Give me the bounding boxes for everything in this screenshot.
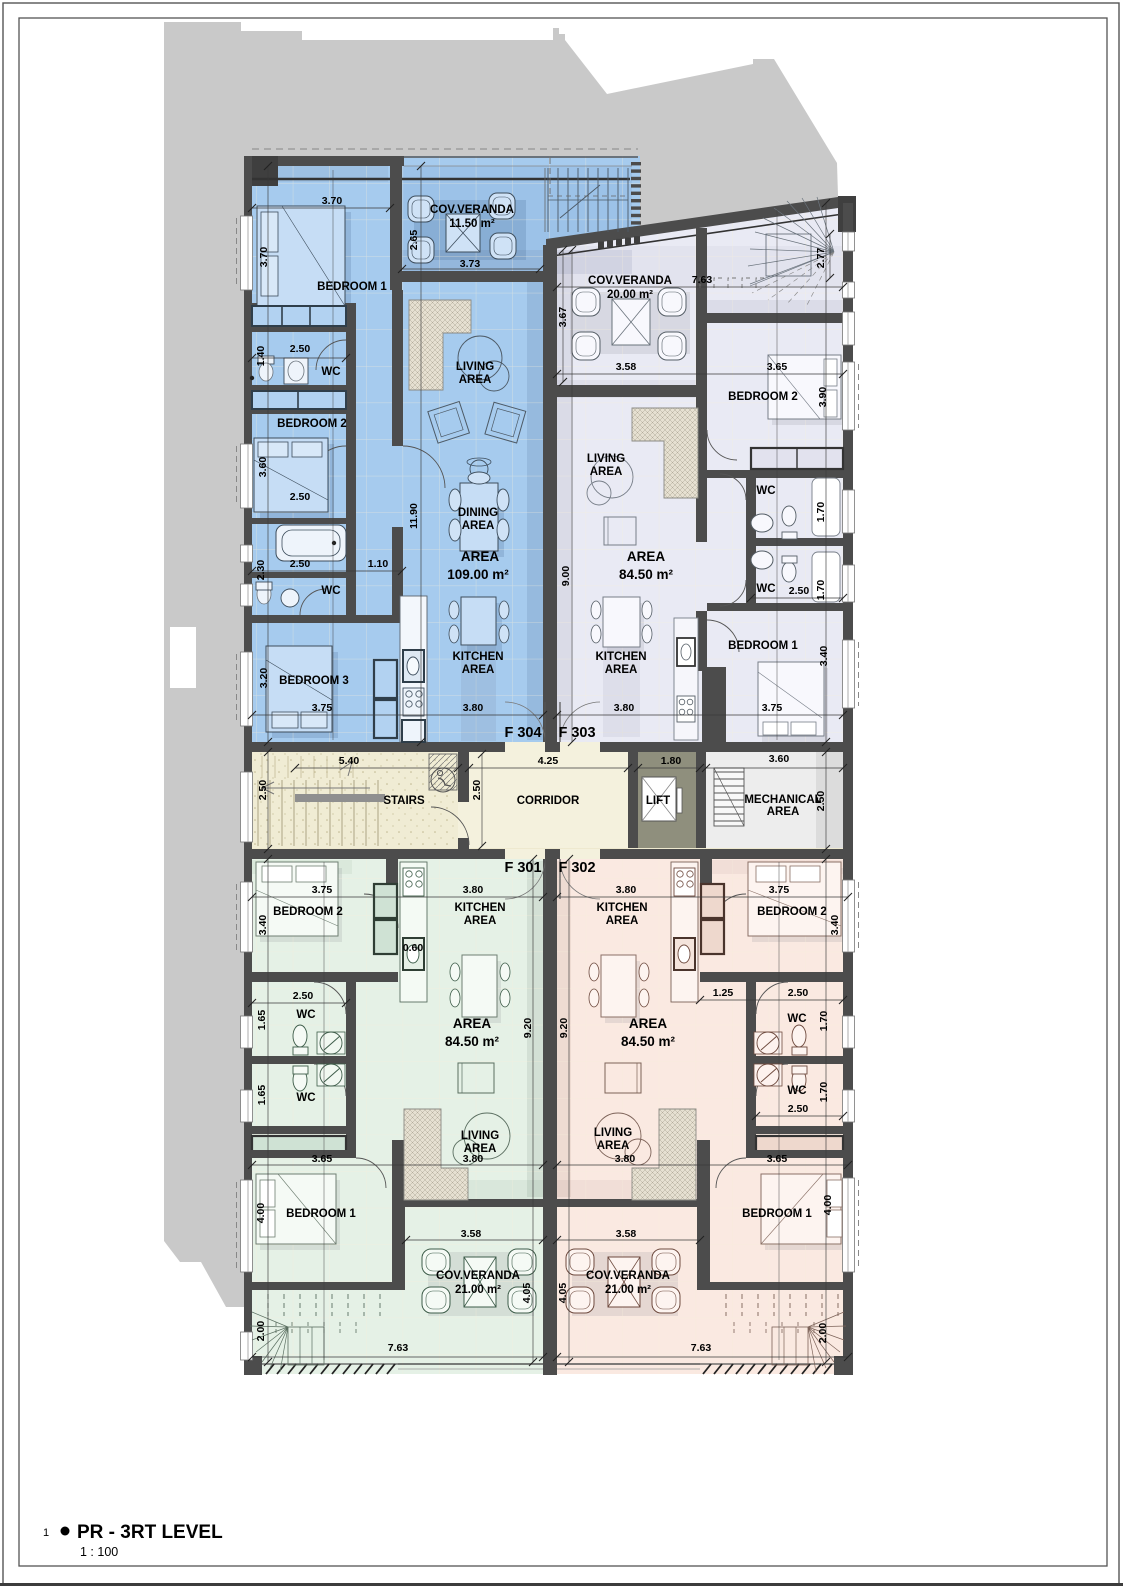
svg-text:4.00: 4.00 bbox=[822, 1195, 834, 1216]
svg-text:3.70: 3.70 bbox=[322, 195, 343, 207]
svg-text:AREA: AREA bbox=[629, 1016, 668, 1031]
svg-text:PR - 3RT LEVEL: PR - 3RT LEVEL bbox=[77, 1522, 223, 1543]
svg-text:3.40: 3.40 bbox=[257, 915, 269, 936]
svg-text:3.75: 3.75 bbox=[769, 884, 790, 896]
svg-text:BEDROOM 2: BEDROOM 2 bbox=[728, 391, 798, 403]
svg-text:AREA: AREA bbox=[606, 915, 639, 927]
svg-text:LIVING: LIVING bbox=[461, 1130, 499, 1142]
svg-text:84.50 m²: 84.50 m² bbox=[621, 1034, 676, 1049]
svg-text:4.25: 4.25 bbox=[538, 755, 559, 767]
svg-text:COV.VERANDA: COV.VERANDA bbox=[430, 204, 514, 216]
svg-text:3.65: 3.65 bbox=[767, 361, 788, 373]
svg-text:STAIRS: STAIRS bbox=[383, 795, 425, 807]
svg-text:BEDROOM 1: BEDROOM 1 bbox=[742, 1208, 812, 1220]
svg-text:1.25: 1.25 bbox=[713, 987, 734, 999]
svg-text:F 304: F 304 bbox=[504, 725, 541, 741]
svg-text:LIVING: LIVING bbox=[594, 1127, 632, 1139]
svg-text:2.50: 2.50 bbox=[471, 780, 483, 801]
svg-text:2.50: 2.50 bbox=[789, 585, 810, 597]
svg-text:2.30: 2.30 bbox=[255, 560, 267, 581]
svg-text:3.75: 3.75 bbox=[312, 884, 333, 896]
svg-text:3.70: 3.70 bbox=[258, 247, 270, 268]
svg-text:3.90: 3.90 bbox=[817, 387, 829, 408]
svg-text:AREA: AREA bbox=[462, 520, 495, 532]
svg-text:21.00 m²: 21.00 m² bbox=[605, 1284, 651, 1296]
svg-text:5.40: 5.40 bbox=[339, 755, 360, 767]
svg-text:1.40: 1.40 bbox=[255, 346, 267, 367]
svg-text:WC: WC bbox=[756, 485, 775, 497]
svg-text:AREA: AREA bbox=[627, 549, 666, 564]
svg-text:2.65: 2.65 bbox=[408, 230, 420, 251]
svg-text:AREA: AREA bbox=[461, 549, 500, 564]
svg-text:84.50 m²: 84.50 m² bbox=[445, 1034, 500, 1049]
svg-text:KITCHEN: KITCHEN bbox=[595, 651, 646, 663]
svg-text:3.60: 3.60 bbox=[257, 457, 269, 478]
svg-text:2.50: 2.50 bbox=[290, 343, 311, 355]
svg-text:2.00: 2.00 bbox=[817, 1323, 829, 1344]
svg-text:KITCHEN: KITCHEN bbox=[454, 902, 505, 914]
svg-text:4.05: 4.05 bbox=[521, 1283, 533, 1304]
svg-text:3.58: 3.58 bbox=[616, 1228, 637, 1240]
svg-text:KITCHEN: KITCHEN bbox=[596, 902, 647, 914]
svg-text:0.60: 0.60 bbox=[403, 942, 424, 954]
svg-text:BEDROOM 2: BEDROOM 2 bbox=[757, 906, 827, 918]
svg-text:2.50: 2.50 bbox=[788, 1103, 809, 1115]
svg-text:1.70: 1.70 bbox=[818, 1082, 830, 1103]
svg-text:21.00 m²: 21.00 m² bbox=[455, 1284, 501, 1296]
svg-text:AREA: AREA bbox=[597, 1140, 630, 1152]
svg-text:WC: WC bbox=[296, 1009, 315, 1021]
svg-text:7.63: 7.63 bbox=[692, 274, 713, 286]
svg-text:LIVING: LIVING bbox=[587, 453, 625, 465]
svg-text:1.70: 1.70 bbox=[818, 1011, 830, 1032]
svg-text:2.77: 2.77 bbox=[815, 248, 827, 269]
svg-text:2.50: 2.50 bbox=[257, 780, 269, 801]
svg-text:BEDROOM 2: BEDROOM 2 bbox=[277, 418, 347, 430]
svg-text:AREA: AREA bbox=[464, 1143, 497, 1155]
svg-text:3.80: 3.80 bbox=[616, 884, 637, 896]
svg-text:2.00: 2.00 bbox=[255, 1321, 267, 1342]
svg-text:MECHANICAL: MECHANICAL bbox=[744, 794, 821, 806]
svg-text:DINING: DINING bbox=[458, 507, 498, 519]
svg-text:1.65: 1.65 bbox=[256, 1085, 268, 1106]
svg-text:3.20: 3.20 bbox=[258, 668, 270, 689]
svg-text:1.80: 1.80 bbox=[661, 755, 682, 767]
svg-text:CORRIDOR: CORRIDOR bbox=[517, 795, 580, 807]
svg-text:9.00: 9.00 bbox=[560, 566, 572, 587]
svg-text:2.50: 2.50 bbox=[788, 987, 809, 999]
svg-text:COV.VERANDA: COV.VERANDA bbox=[436, 1270, 520, 1282]
svg-text:9.20: 9.20 bbox=[522, 1018, 534, 1039]
svg-text:COV.VERANDA: COV.VERANDA bbox=[586, 1270, 670, 1282]
svg-text:AREA: AREA bbox=[605, 664, 638, 676]
svg-text:WC: WC bbox=[321, 366, 340, 378]
svg-text:COV.VERANDA: COV.VERANDA bbox=[588, 275, 672, 287]
svg-text:3.67: 3.67 bbox=[557, 307, 569, 328]
svg-text:3.80: 3.80 bbox=[463, 702, 484, 714]
svg-text:F 302: F 302 bbox=[558, 860, 595, 876]
svg-text:3.58: 3.58 bbox=[461, 1228, 482, 1240]
svg-text:F 301: F 301 bbox=[504, 860, 541, 876]
svg-text:1.65: 1.65 bbox=[256, 1010, 268, 1031]
svg-text:3.80: 3.80 bbox=[615, 1153, 636, 1165]
svg-text:11.50 m²: 11.50 m² bbox=[449, 218, 495, 230]
svg-text:84.50 m²: 84.50 m² bbox=[619, 567, 674, 582]
svg-text:BEDROOM 2: BEDROOM 2 bbox=[273, 906, 343, 918]
svg-text:2.50: 2.50 bbox=[290, 491, 311, 503]
svg-text:F 303: F 303 bbox=[558, 725, 595, 741]
svg-text:9.20: 9.20 bbox=[558, 1018, 570, 1039]
svg-text:3.73: 3.73 bbox=[460, 258, 481, 270]
svg-text:3.75: 3.75 bbox=[762, 702, 783, 714]
svg-text:1: 1 bbox=[43, 1527, 49, 1539]
svg-text:3.65: 3.65 bbox=[767, 1153, 788, 1165]
svg-text:11.90: 11.90 bbox=[408, 503, 420, 529]
svg-text:1.70: 1.70 bbox=[815, 580, 827, 601]
svg-text:WC: WC bbox=[296, 1092, 315, 1104]
svg-text:3.80: 3.80 bbox=[463, 884, 484, 896]
svg-text:2.50: 2.50 bbox=[290, 558, 311, 570]
svg-text:BEDROOM 1: BEDROOM 1 bbox=[286, 1208, 356, 1220]
svg-text:AREA: AREA bbox=[462, 664, 495, 676]
svg-text:3.60: 3.60 bbox=[769, 753, 790, 765]
svg-text:3.40: 3.40 bbox=[818, 646, 830, 667]
svg-text:1.70: 1.70 bbox=[815, 502, 827, 523]
svg-text:3.40: 3.40 bbox=[829, 915, 841, 936]
svg-text:AREA: AREA bbox=[767, 806, 800, 818]
svg-text:109.00 m²: 109.00 m² bbox=[447, 567, 509, 582]
svg-text:1.10: 1.10 bbox=[368, 558, 389, 570]
svg-text:AREA: AREA bbox=[464, 915, 497, 927]
svg-text:BEDROOM 3: BEDROOM 3 bbox=[279, 675, 349, 687]
svg-text:WC: WC bbox=[756, 583, 775, 595]
svg-text:7.63: 7.63 bbox=[388, 1342, 409, 1354]
svg-text:LIFT: LIFT bbox=[646, 795, 670, 807]
svg-text:AREA: AREA bbox=[459, 374, 492, 386]
svg-text:BEDROOM 1: BEDROOM 1 bbox=[317, 281, 387, 293]
svg-text:LIVING: LIVING bbox=[456, 361, 494, 373]
svg-text:3.75: 3.75 bbox=[312, 702, 333, 714]
svg-text:WC: WC bbox=[787, 1013, 806, 1025]
svg-text:4.05: 4.05 bbox=[557, 1283, 569, 1304]
svg-text:1 : 100: 1 : 100 bbox=[80, 1545, 118, 1559]
svg-text:AREA: AREA bbox=[590, 466, 623, 478]
svg-text:WC: WC bbox=[321, 585, 340, 597]
svg-text:BEDROOM 1: BEDROOM 1 bbox=[728, 640, 798, 652]
svg-text:AREA: AREA bbox=[453, 1016, 492, 1031]
svg-text:7.63: 7.63 bbox=[691, 1342, 712, 1354]
svg-text:KITCHEN: KITCHEN bbox=[452, 651, 503, 663]
svg-text:4.00: 4.00 bbox=[255, 1203, 267, 1224]
svg-text:2.50: 2.50 bbox=[293, 990, 314, 1002]
svg-text:3.58: 3.58 bbox=[616, 361, 637, 373]
svg-text:WC: WC bbox=[787, 1085, 806, 1097]
svg-text:3.80: 3.80 bbox=[614, 702, 635, 714]
svg-text:3.65: 3.65 bbox=[312, 1153, 333, 1165]
svg-text:20.00 m²: 20.00 m² bbox=[607, 289, 653, 301]
